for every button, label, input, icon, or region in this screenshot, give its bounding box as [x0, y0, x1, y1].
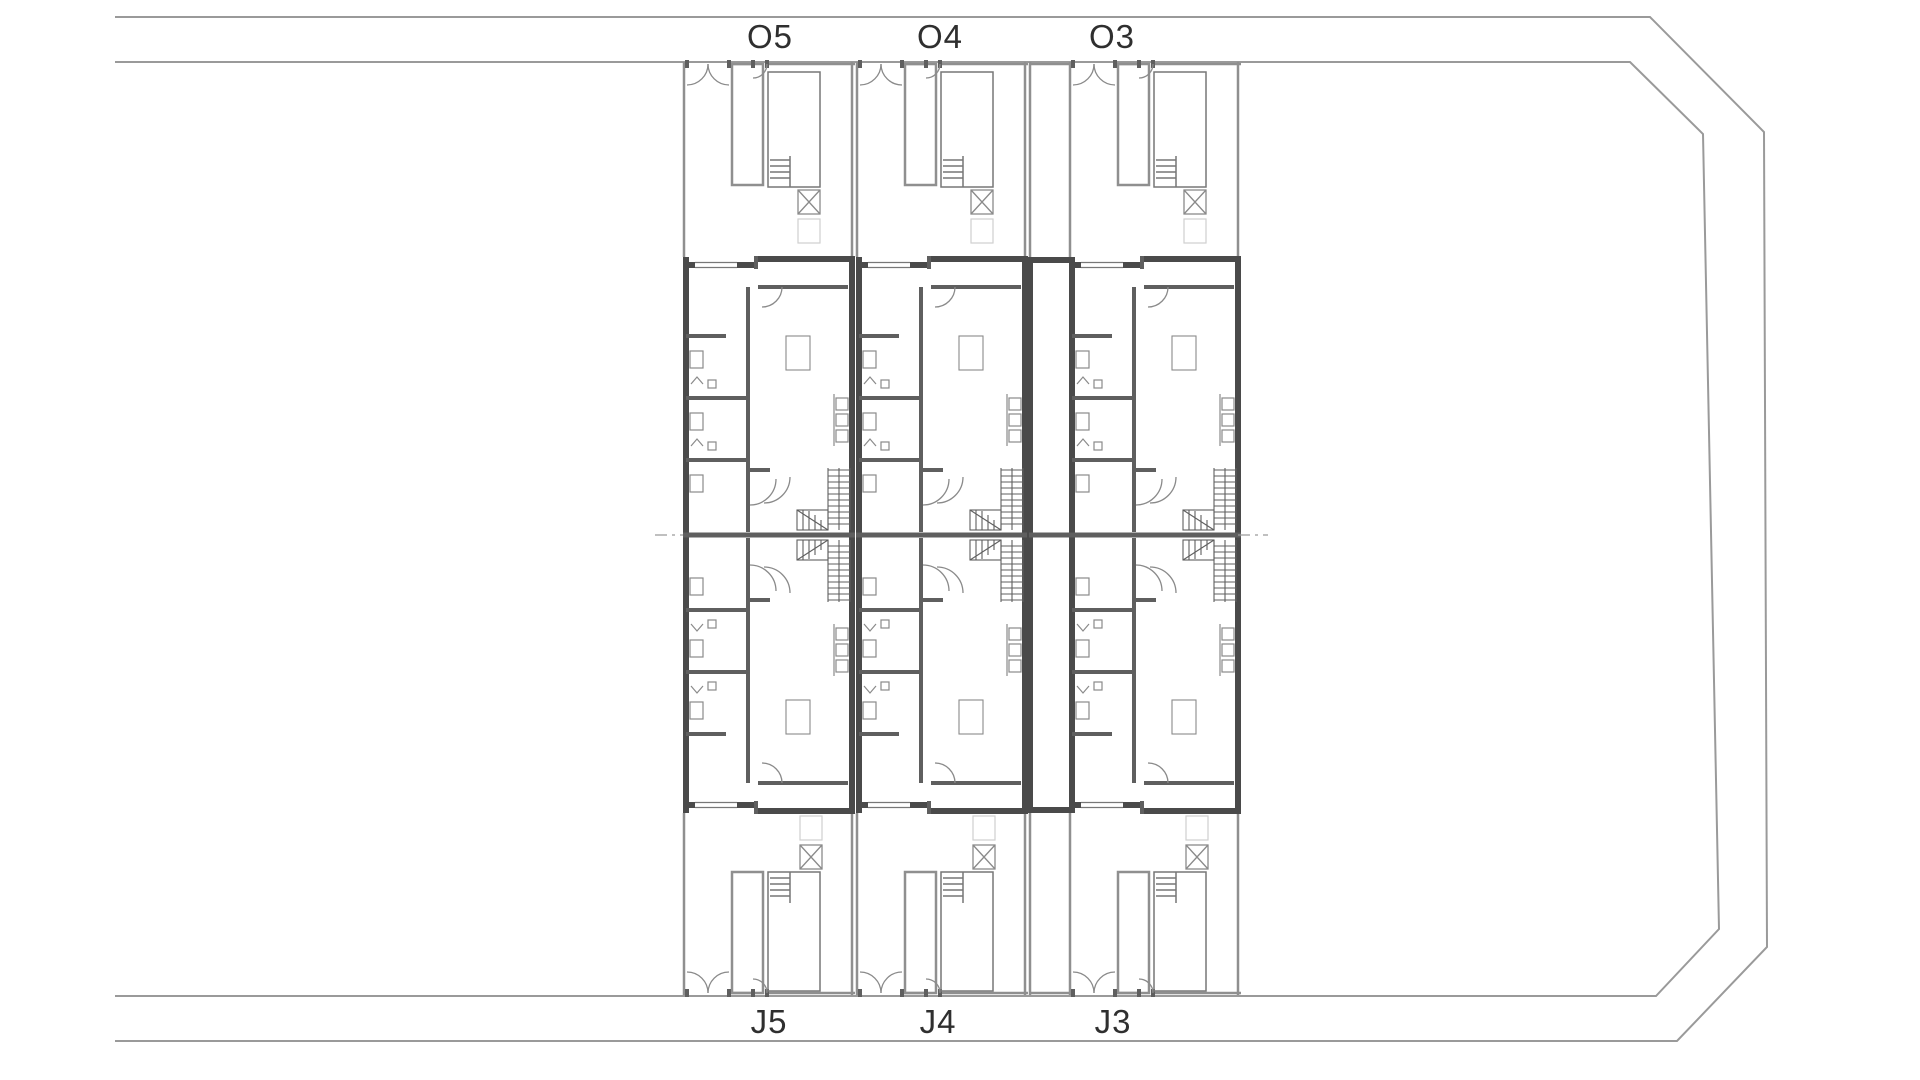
label-j3: J3	[1095, 1003, 1132, 1040]
unit-column-o3-extension	[1029, 62, 1071, 995]
label-o4: O4	[917, 18, 963, 55]
label-j4: J4	[920, 1003, 957, 1040]
unit-column-o3-j3	[1069, 60, 1241, 997]
unit-column-o5-j5	[683, 60, 855, 997]
unit-column-o4-j4	[856, 60, 1028, 997]
extension-garden-walls	[1029, 62, 1071, 995]
floor-plan: O5 O4 O3 J5 J4 J3	[0, 0, 1920, 1080]
label-j5: J5	[751, 1003, 788, 1040]
label-o3: O3	[1089, 18, 1135, 55]
floor-plan-page: O5 O4 O3 J5 J4 J3	[0, 0, 1920, 1080]
label-o5: O5	[747, 18, 793, 55]
site-boundary-inner	[115, 62, 1719, 996]
